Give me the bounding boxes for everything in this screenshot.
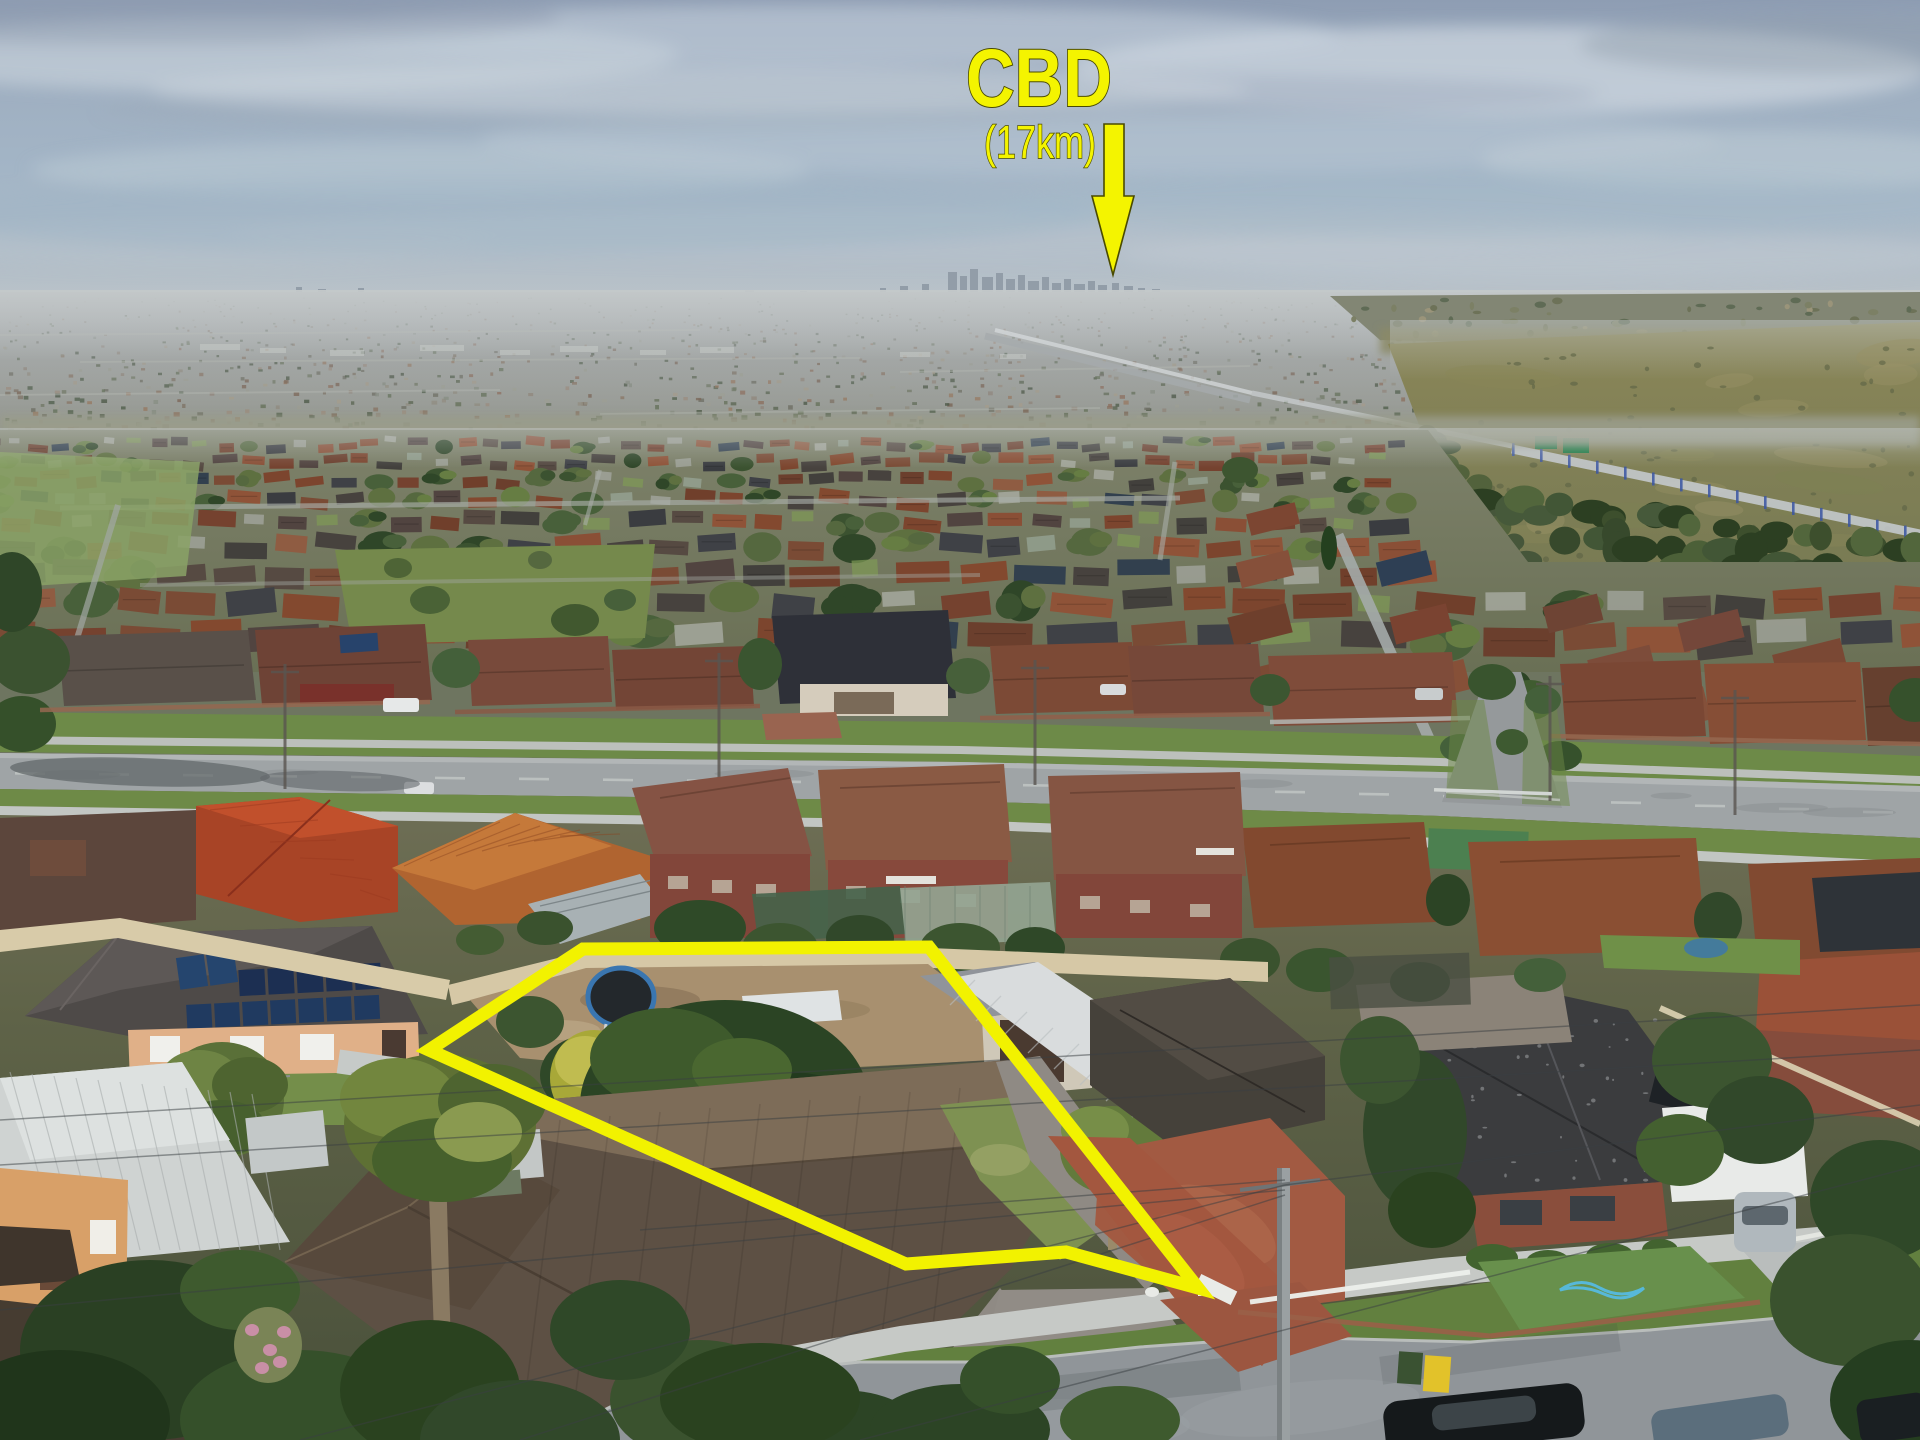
svg-text:CBD: CBD: [966, 33, 1112, 124]
svg-text:(17km): (17km): [984, 116, 1096, 168]
